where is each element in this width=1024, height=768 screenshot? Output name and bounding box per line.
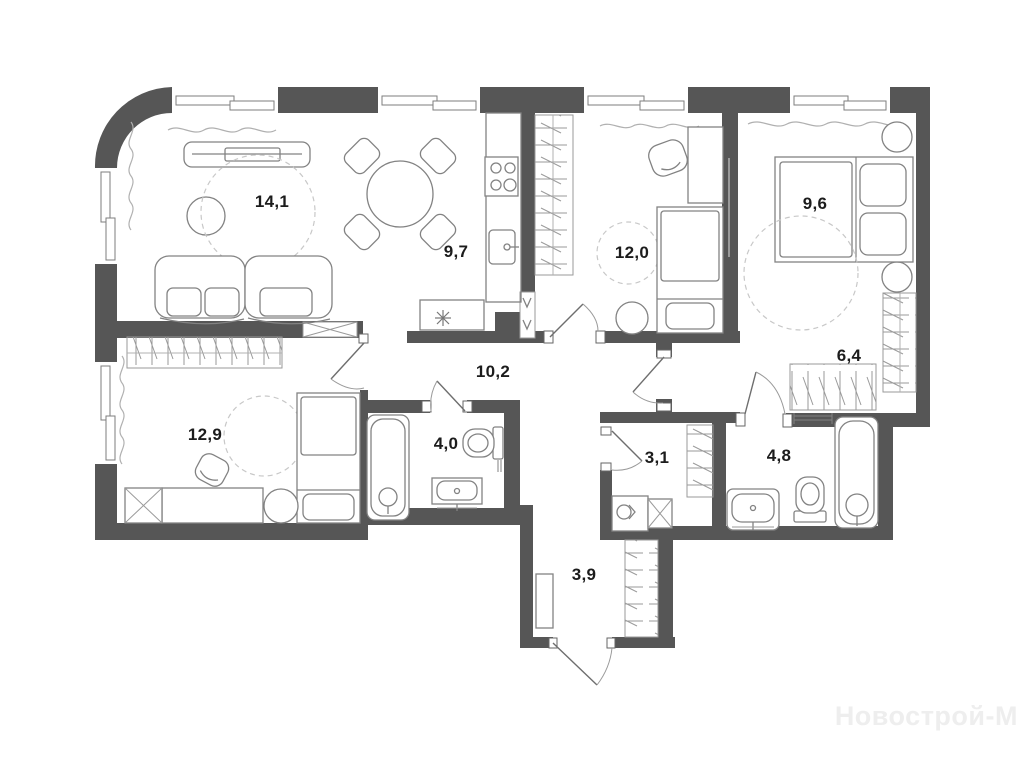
window-bedroom-1-left xyxy=(95,362,117,464)
chair-bedroom-1 xyxy=(192,451,232,490)
entry-hall-furniture xyxy=(536,574,553,628)
tv-console xyxy=(184,142,310,167)
plant-squiggle-bedroom-2 xyxy=(600,124,699,127)
coffee-table xyxy=(187,197,225,235)
clearance-circle-bedroom-1 xyxy=(224,396,304,476)
floorplan-drawing xyxy=(0,0,1024,768)
wardrobe-64-bottom xyxy=(790,364,876,410)
bathtub-1 xyxy=(367,415,409,520)
room-area-label-entry-hall: 3,9 xyxy=(572,565,597,585)
window-bedroom-3 xyxy=(790,87,890,113)
clearance-circle-living xyxy=(201,155,315,269)
kitchen-counter xyxy=(486,113,521,302)
desk-bedroom-2 xyxy=(688,127,723,203)
bed-bedroom-1 xyxy=(297,393,360,523)
floorplan-canvas: 14,1 9,7 12,0 9,6 6,4 12,9 10,2 4,0 3,1 … xyxy=(0,0,1024,768)
room-area-label-bedroom-2: 12,0 xyxy=(615,243,649,263)
desk-bedroom-1 xyxy=(125,488,263,523)
snowflake-icon xyxy=(435,310,451,326)
sink-2 xyxy=(727,489,779,530)
sink-1 xyxy=(432,478,482,511)
fridge xyxy=(420,300,484,330)
armchair-bedroom-2 xyxy=(646,137,691,179)
bathtub-2 xyxy=(835,417,878,528)
shoe-bench xyxy=(536,574,553,628)
plant-squiggle-living-top xyxy=(168,128,276,132)
room-area-label-storage: 3,1 xyxy=(645,448,670,468)
room-area-label-bathroom-1: 4,0 xyxy=(434,434,459,454)
room-area-label-kitchen-dining: 9,7 xyxy=(444,242,469,262)
duct-box xyxy=(648,499,672,528)
room-area-label-bedroom-3: 9,6 xyxy=(803,194,828,214)
door-bathroom-1 xyxy=(431,381,465,411)
room-area-label-hallway: 10,2 xyxy=(476,362,510,382)
kitchen-furniture xyxy=(341,113,521,330)
plant-squiggle-living-left xyxy=(129,122,133,230)
door-bedroom-1 xyxy=(331,343,364,389)
wardrobe-64-side xyxy=(883,293,916,392)
stool-bedroom-2 xyxy=(616,302,648,334)
door-bathroom-2 xyxy=(745,372,785,414)
plant-squiggle-bedroom-3 xyxy=(748,122,904,126)
window-kitchen xyxy=(378,87,480,113)
wall-cabinet-x xyxy=(303,322,357,337)
pouf-bedroom-1 xyxy=(264,489,298,523)
room-area-label-bedroom-1: 12,9 xyxy=(188,425,222,445)
nightstand-top xyxy=(882,122,912,152)
toilet-2 xyxy=(794,477,826,522)
room-area-label-bathroom-2: 4,8 xyxy=(767,446,792,466)
vent-shaft xyxy=(520,292,535,338)
watermark: Новострой-М xyxy=(833,701,1018,732)
closet-entry xyxy=(625,540,658,637)
towel-rail-1 xyxy=(498,460,501,472)
room-area-label-wardrobe: 6,4 xyxy=(837,346,862,366)
toilet-1 xyxy=(463,427,503,459)
window-living xyxy=(172,87,278,113)
plant-squiggle-bedroom-1 xyxy=(120,356,124,464)
door-storage xyxy=(612,431,642,470)
storage-fixtures xyxy=(612,496,672,531)
room-area-label-living-room: 14,1 xyxy=(255,192,289,212)
bed-bedroom-2 xyxy=(657,207,723,333)
bathroom-1-fixtures xyxy=(367,415,503,520)
bedroom-1-furniture xyxy=(120,356,360,523)
door-jambs xyxy=(359,331,792,648)
bathroom-2-fixtures xyxy=(727,413,878,530)
dining-table xyxy=(367,161,433,227)
shelves-storage xyxy=(687,425,713,497)
window-bedroom-2 xyxy=(584,87,688,113)
door-entrance xyxy=(553,643,612,685)
door-bedroom-2 xyxy=(550,304,598,337)
living-room-furniture xyxy=(129,122,332,324)
nightstand-bottom xyxy=(882,262,912,292)
stove xyxy=(485,157,518,196)
bedroom-2-furniture xyxy=(597,124,729,334)
window-living-left xyxy=(95,168,117,264)
double-bed xyxy=(775,157,913,262)
kitchen-sink xyxy=(489,230,519,264)
wardrobe-rail-bedroom-1 xyxy=(127,337,282,368)
closet-bedroom-2 xyxy=(535,115,573,275)
door-hall-vestibule xyxy=(633,357,664,403)
sofa xyxy=(155,256,332,324)
washing-machine xyxy=(612,496,648,531)
